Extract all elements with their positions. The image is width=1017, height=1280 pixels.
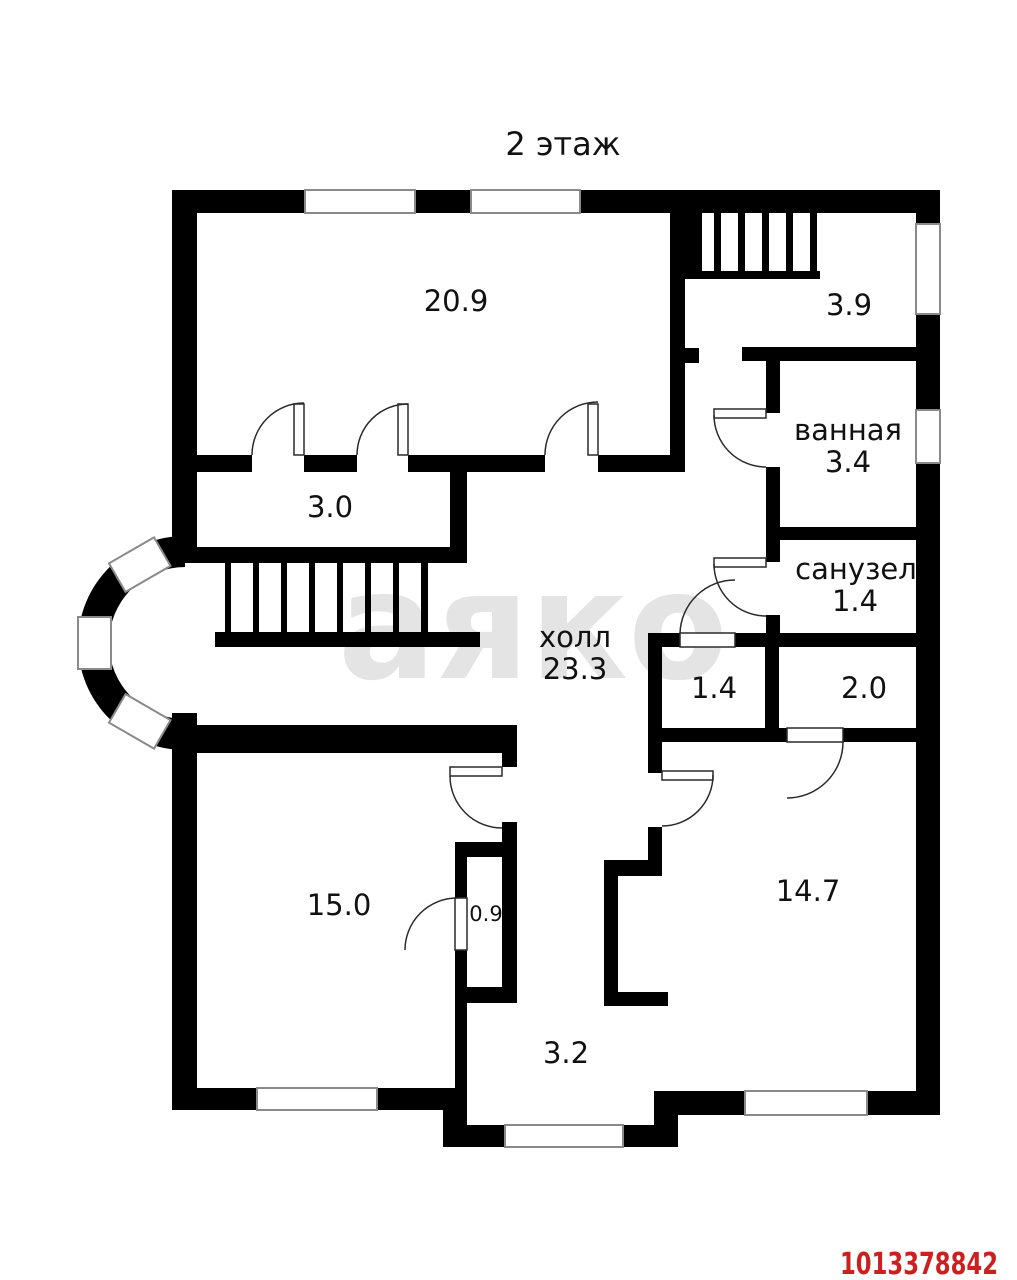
stair-tread	[786, 213, 793, 271]
wall-room15-right-lower	[502, 822, 517, 842]
bay-window-west	[78, 617, 111, 669]
hall-area: 23.3	[543, 652, 608, 686]
door-leaf	[450, 767, 502, 776]
wall-closet-left-lower	[455, 950, 467, 987]
door-swing-arc	[450, 776, 502, 828]
wall-left-upper	[172, 190, 197, 562]
wall-room14-door-lower	[648, 825, 662, 875]
door-swing-arc	[405, 898, 457, 950]
wall-corridor-right-stub	[654, 1112, 678, 1147]
door-leaf	[714, 558, 766, 567]
stair-tread	[337, 563, 343, 633]
hall-name: холл	[539, 620, 611, 654]
wall-notch	[685, 348, 699, 363]
stair-tread	[762, 213, 769, 271]
listing-id: 1013378842	[840, 1247, 998, 1280]
closet-0-9-area: 0.9	[469, 902, 502, 926]
passage-gap-stair	[699, 347, 742, 363]
storage-2-0-area: 2.0	[841, 671, 887, 705]
stair-tread	[309, 563, 315, 633]
wall-room14-door-upper	[648, 742, 662, 775]
wall-storage-divider	[765, 647, 779, 728]
door-gap-room14	[648, 773, 662, 827]
wall-bath-wc-divider	[766, 527, 916, 540]
bathroom-area: 3.4	[825, 445, 871, 479]
storage-1-4-area: 1.4	[691, 671, 737, 705]
window-bottom-room14	[745, 1091, 867, 1115]
wall-closet-right	[502, 857, 517, 987]
stair-stringer	[215, 632, 480, 647]
wall-left-lower	[172, 713, 197, 1110]
door-leaf	[714, 409, 766, 418]
door-gap-wc	[766, 562, 780, 615]
door-leaf	[455, 898, 467, 950]
wc-name: санузел	[795, 552, 917, 586]
door-gap-bathroom	[766, 413, 780, 467]
bay-turret	[78, 536, 185, 750]
wall-room20-east	[670, 190, 685, 472]
window-top-1	[305, 190, 415, 213]
stair-tread	[393, 563, 399, 633]
window-right-bath	[916, 410, 940, 463]
wall-bath-top	[742, 347, 916, 361]
page-title: 2 этаж	[505, 125, 620, 163]
window-right-stair	[916, 224, 940, 314]
door-swing-arc	[662, 775, 713, 826]
wall-room3-right	[450, 455, 467, 563]
door-leaf	[588, 404, 598, 455]
stair-room-3-9-area: 3.9	[826, 288, 872, 322]
stair-tread	[253, 563, 259, 633]
stair-tread	[810, 213, 817, 271]
window-bottom-corridor	[505, 1125, 623, 1147]
door-gap-room20-2	[357, 455, 408, 472]
door-swing-arc	[787, 742, 843, 798]
door-leaf	[398, 404, 408, 455]
bathroom-name: ванная	[794, 413, 902, 447]
room-15-0-area: 15.0	[307, 888, 372, 922]
stair-tread	[421, 563, 428, 633]
stair-tread	[225, 563, 231, 633]
wall-closet-bottom	[455, 987, 517, 1003]
door-leaf	[680, 633, 735, 647]
window-bottom-room15	[257, 1088, 377, 1110]
wall-zigzag	[604, 860, 618, 1006]
door-leaf	[662, 771, 713, 780]
staircase-upper	[684, 213, 820, 279]
wall-corridor-left	[455, 987, 467, 1127]
wall-room15-right-upper	[502, 753, 517, 767]
corridor-3-2-area: 3.2	[543, 1036, 589, 1070]
stair-tread	[281, 563, 287, 633]
stair-tread	[365, 563, 371, 633]
wall-storage-bottom	[648, 728, 916, 742]
stair-tread	[714, 213, 721, 271]
door-gap-room20-1	[252, 455, 304, 472]
room-3-0-area: 3.0	[307, 490, 353, 524]
door-leaf	[294, 404, 304, 455]
window-top-2	[471, 190, 580, 213]
wall-closet-left-upper	[455, 857, 467, 898]
wc-area: 1.4	[832, 584, 878, 618]
door-gap-room15	[502, 767, 517, 822]
wall-room20-bottom	[172, 455, 685, 472]
wall-room15-top	[172, 725, 517, 753]
stair-tread	[738, 213, 745, 271]
floorplan: аяко 2 этаж	[0, 0, 1017, 1280]
door-swing-arc	[714, 415, 766, 467]
stair-side-wall	[684, 213, 702, 271]
wall-closet-top	[455, 842, 517, 857]
room-14-7-area: 14.7	[776, 874, 841, 908]
door-leaf	[787, 728, 843, 742]
wall-room3-bottom	[172, 547, 467, 563]
stair-stringer	[684, 271, 820, 279]
wall-storage14-left	[648, 633, 662, 742]
door-gap-room20-3	[545, 455, 598, 472]
wall-right	[916, 190, 940, 1115]
room-20-9-area: 20.9	[424, 284, 489, 318]
